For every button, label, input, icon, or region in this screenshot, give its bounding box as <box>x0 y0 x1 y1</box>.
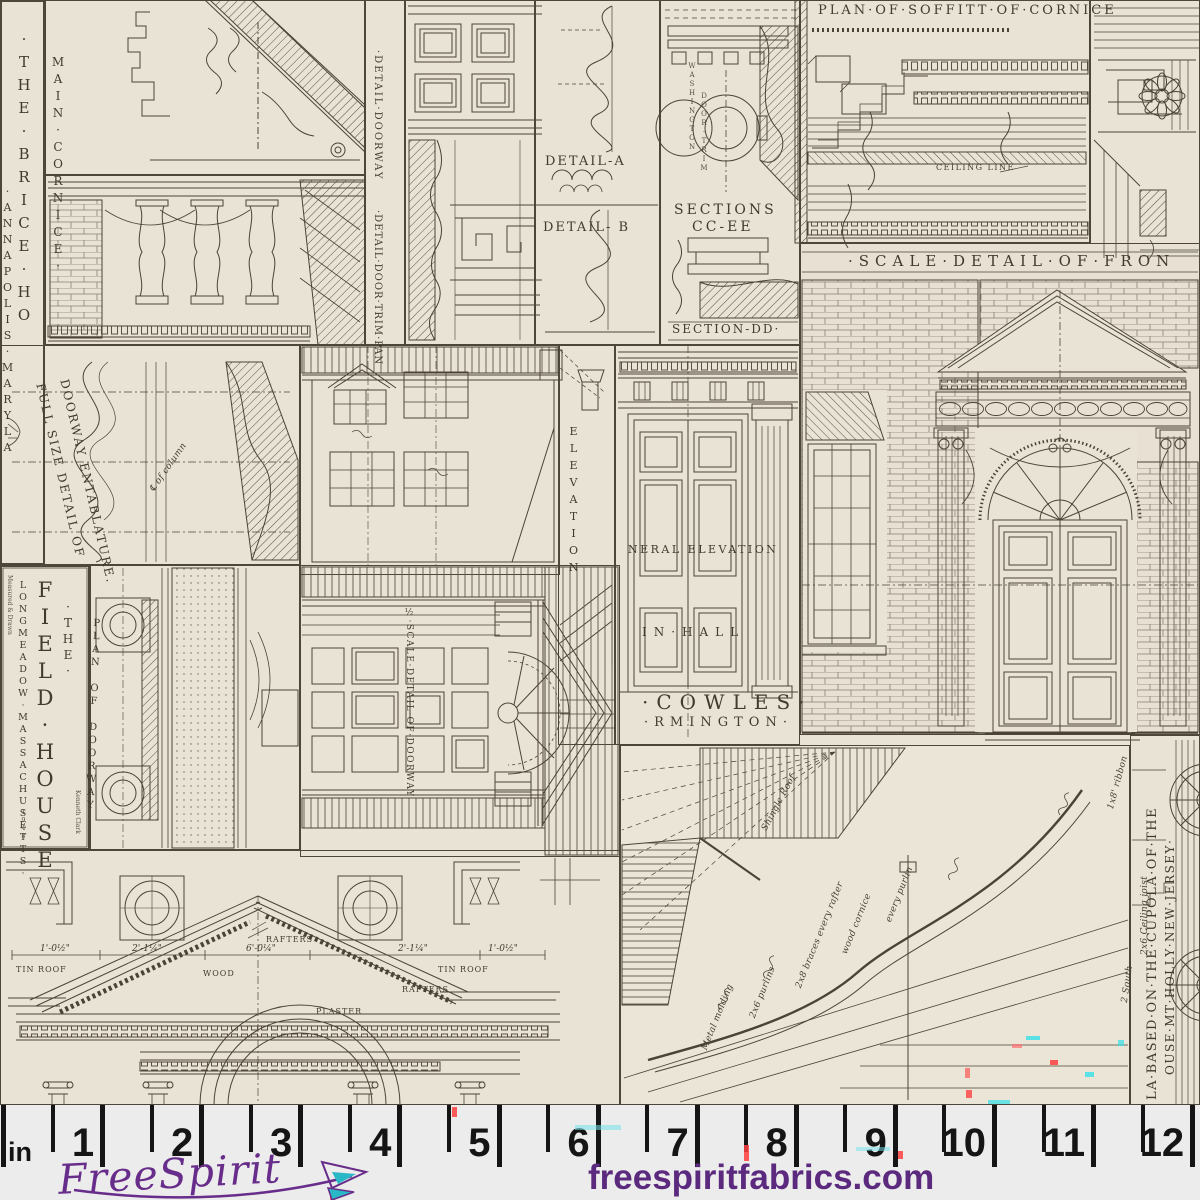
label-section-dd: SECTION-DD· <box>672 323 780 335</box>
label-scale-doorway: ½·SCALE·DETAIL·OF·DOORWAY <box>404 608 413 797</box>
label-measured-drawn: Measured & Drawn <box>6 575 12 635</box>
label-plan-soffitt: PLAN·OF·SOFFITT·OF·CORNICE <box>818 4 1117 17</box>
dimension-label: 1'-0½" <box>488 944 518 954</box>
glitch-artifact <box>1050 1060 1058 1065</box>
label-detail-a: DETAIL-A <box>545 155 626 168</box>
ruler-tick-11 <box>1091 1105 1096 1167</box>
glitch-artifact <box>965 1068 970 1078</box>
label-washington: WASHINGTON <box>688 62 695 152</box>
label-the: ·THE· <box>62 600 74 680</box>
label-brice-title: ·THE·BRICE·HO <box>16 30 31 329</box>
website-url: freespiritfabrics.com <box>588 1158 934 1198</box>
label-cowles: ·COWLES· <box>642 692 813 712</box>
label-rafters-left: RAFTERS <box>266 936 313 944</box>
label-year: 1948 <box>20 808 27 840</box>
glitch-artifact <box>1026 1036 1040 1040</box>
label-in-hall: IN·HALL <box>642 626 745 638</box>
fabric-swatch: ·THE·BRICE·HO ·ANNAPOLIS·MARYLA MAIN·COR… <box>0 0 1200 1105</box>
label-main-cornice: MAIN·CORNICE· <box>52 55 64 276</box>
label-rafters-right: RAFTERS <box>402 986 449 994</box>
label-scale-front: ·SCALE·DETAIL·OF·FRON <box>848 254 1175 269</box>
ruler-tick-4 <box>397 1105 402 1167</box>
fabric-product-image: ·THE·BRICE·HO ·ANNAPOLIS·MARYLA MAIN·COR… <box>0 0 1200 1200</box>
ruler-number-10: 10 <box>930 1121 986 1166</box>
dimension-label: 6'-0¼" <box>246 944 276 954</box>
label-detail-b: DETAIL- B <box>543 221 630 234</box>
label-ceiling-line: CEILING LINE <box>936 164 1015 172</box>
glitch-artifact <box>575 1125 621 1130</box>
ruler-number-12: 12 <box>1128 1121 1184 1166</box>
label-detail-doorway: ·DETAIL·DOORWAY <box>372 50 382 181</box>
glitch-artifact <box>1118 1040 1124 1046</box>
dimension-label: 2'-1¼" <box>398 944 428 954</box>
label-general-elevation: NERAL ELEVATION <box>628 544 778 555</box>
ruler-tick-5 <box>497 1105 502 1167</box>
ruler-number-5: 5 <box>435 1121 491 1166</box>
ruler-unit-label: in <box>8 1137 32 1168</box>
label-kenneth-clark: Kenneth Clark <box>74 790 80 834</box>
glitch-artifact <box>452 1107 457 1117</box>
label-annapolis: ·ANNAPOLIS·MARYLA <box>2 185 13 457</box>
glitch-artifact <box>1012 1044 1022 1048</box>
ruler-tick-10 <box>992 1105 997 1167</box>
logo-swash-and-plane-icon <box>70 1158 380 1200</box>
label-wood: WOOD <box>203 970 235 978</box>
label-farmington: ·RMINGTON· <box>644 716 793 729</box>
label-field-house: FIELD·HOUSE <box>34 578 55 875</box>
ruler-tick-0 <box>1 1105 6 1167</box>
ruler-number-11: 11 <box>1029 1121 1085 1166</box>
label-door-trim: DOOR·TRIM <box>700 92 707 173</box>
label-tin-roof-left: TIN ROOF <box>16 966 67 974</box>
ruler-tick-12 <box>1190 1105 1195 1167</box>
label-sections: SECTIONS <box>674 203 777 217</box>
label-detail-door-trim: ·DETAIL·DOOR·TRIM·PAN <box>372 210 382 365</box>
glitch-artifact <box>1085 1072 1094 1077</box>
label-tin-roof-right: TIN ROOF <box>438 966 489 974</box>
glitch-artifact <box>988 1100 1010 1104</box>
label-cupola-line2: OUSE·MT·HOLLY·NEW·JERSEY· <box>1164 839 1176 1075</box>
roof-hand-note: 2x6 Ceiling joist <box>1140 876 1150 955</box>
label-elevation: ELEVATION <box>568 425 579 578</box>
dimension-label: 1'-0½" <box>40 944 70 954</box>
dimension-label: 2'-1¼" <box>132 944 162 954</box>
label-cc-ee: CC-EE <box>692 220 754 234</box>
label-plaster: PLASTER <box>316 1008 362 1016</box>
glitch-artifact <box>856 1147 890 1151</box>
glitch-artifact <box>966 1090 972 1098</box>
